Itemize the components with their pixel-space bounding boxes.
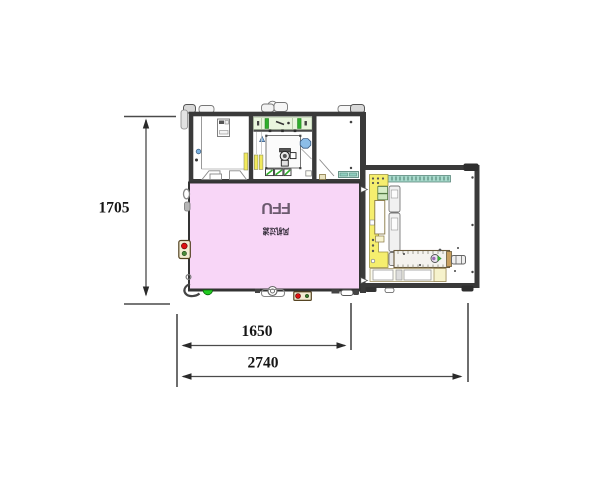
svg-text:1650: 1650 — [242, 323, 273, 340]
svg-text:1705: 1705 — [99, 200, 130, 217]
svg-text:风机过滤: 风机过滤 — [263, 227, 290, 237]
svg-text:FFU: FFU — [262, 199, 291, 216]
svg-text:2740: 2740 — [248, 355, 279, 372]
